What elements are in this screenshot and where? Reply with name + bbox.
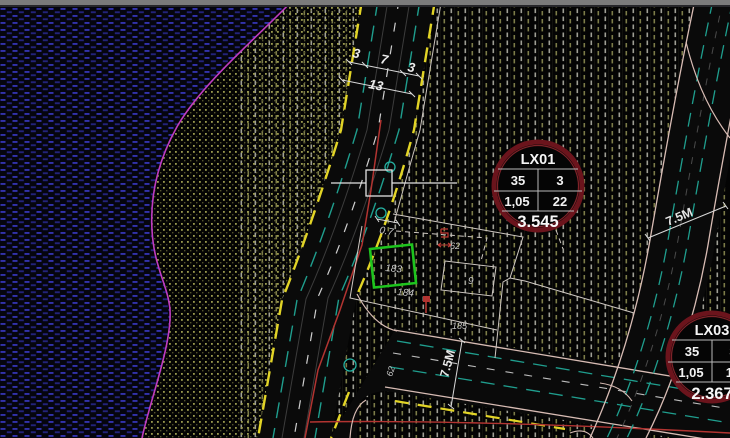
red-block-marker [423, 296, 430, 302]
label-185: 185 [452, 321, 468, 331]
lx01-r2c2: 22 [553, 194, 567, 209]
lx03-r2c1: 1,05 [678, 365, 703, 380]
lx01-title: LX01 [521, 152, 556, 168]
lx03-total: 2.367 [691, 385, 730, 403]
lx03-title: LX03 [695, 323, 730, 339]
cad-viewport[interactable]: 3 7 3 13 0.7 7.5M 7.5M 183 184 185 9 62 … [0, 0, 730, 438]
label-184: 184 [397, 287, 415, 299]
label-62: 62 [450, 241, 460, 251]
window-top-bar [0, 0, 730, 5]
label-183: 183 [385, 263, 403, 275]
callout-lx01[interactable]: LX01 35 3 1,05 22 3.545 [494, 142, 582, 231]
lx03-r2c2: 14 [726, 365, 730, 380]
lx03-r1c1: 35 [685, 344, 699, 359]
lx01-r1c2: 3 [556, 173, 563, 188]
lx01-total: 3.545 [517, 213, 558, 231]
window-top-bar-shadow [0, 5, 730, 7]
lx01-r2c1: 1,05 [504, 194, 529, 209]
label-9: 9 [468, 276, 474, 287]
lx01-r1c1: 35 [511, 173, 525, 188]
cad-drawing: 3 7 3 13 0.7 7.5M 7.5M 183 184 185 9 62 … [0, 0, 730, 438]
